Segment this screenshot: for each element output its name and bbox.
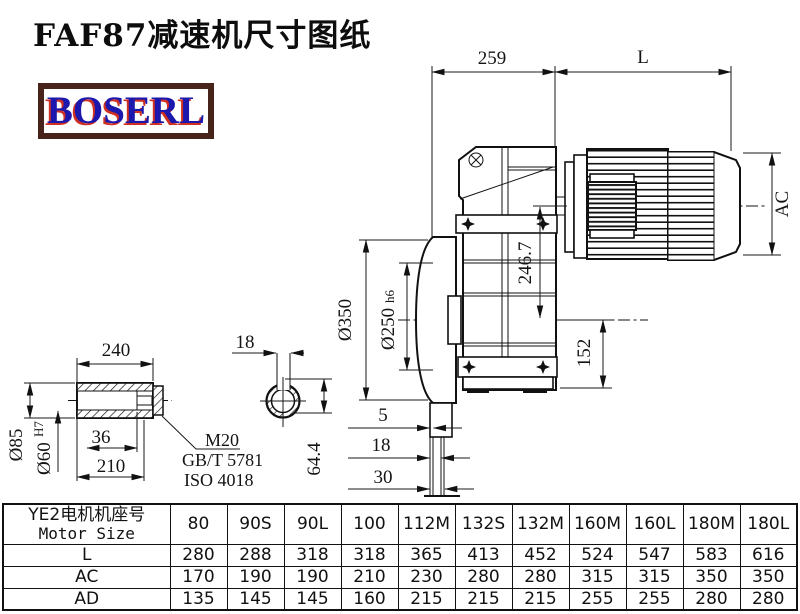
- terminal-box: [588, 182, 636, 230]
- cell: 413: [455, 544, 512, 566]
- row-label: L: [3, 544, 170, 566]
- cell: 280: [455, 566, 512, 588]
- cell: 315: [569, 566, 626, 588]
- dim-5-label: 5: [378, 405, 388, 426]
- cell: 135: [170, 588, 227, 610]
- dim-350-label: Ø350: [335, 299, 356, 341]
- dim-AC-label: AC: [772, 191, 793, 217]
- cell: 524: [569, 544, 626, 566]
- dim-250-tolerance: h6: [382, 290, 397, 304]
- dim-240-label: 240: [102, 340, 131, 361]
- table-row-L: L 280 288 318 318 365 413 452 524 547 58…: [3, 544, 797, 566]
- cell: 280: [170, 544, 227, 566]
- dim-L-label: L: [637, 47, 649, 68]
- thread-label: M20: [205, 430, 239, 450]
- cell: 280: [740, 588, 797, 610]
- cell: 616: [740, 544, 797, 566]
- output-flange: [416, 237, 461, 496]
- dim-18: 18: [348, 435, 470, 458]
- col-header: 80: [170, 504, 227, 544]
- cell: 190: [284, 566, 341, 588]
- dim-60-tolerance: H7: [31, 421, 46, 437]
- cell: 318: [284, 544, 341, 566]
- table-header-row: YE2电机机座号 Motor Size 80 90S 90L 100 112M …: [3, 504, 797, 544]
- thread-callout: M20 GB/T 5781 ISO 4018: [162, 416, 263, 490]
- terminal-box-top: [590, 174, 634, 182]
- dim-60H7: Ø60 H7: [31, 411, 58, 475]
- col-header: 90S: [227, 504, 284, 544]
- gearbox-housing: [456, 147, 557, 393]
- cell: 215: [455, 588, 512, 610]
- col-header: 160L: [626, 504, 683, 544]
- dim-152: 152: [558, 320, 612, 388]
- cell: 365: [398, 544, 455, 566]
- dim-keyway-18: 18: [232, 332, 304, 353]
- col-header: 112M: [398, 504, 455, 544]
- dim-60-label: Ø60: [34, 442, 55, 475]
- cell: 280: [683, 588, 740, 610]
- motor-size-header-en: Motor Size: [4, 525, 170, 543]
- cell: 288: [227, 544, 284, 566]
- dimension-drawing: 259 L AC 246.7: [0, 0, 800, 503]
- motor-size-table: YE2电机机座号 Motor Size 80 90S 90L 100 112M …: [2, 503, 798, 611]
- cell: 215: [398, 588, 455, 610]
- cell: 583: [683, 544, 740, 566]
- foot-pad: [467, 389, 489, 393]
- col-header: 90L: [284, 504, 341, 544]
- cell: 215: [512, 588, 569, 610]
- motor-size-header: YE2电机机座号 Motor Size: [3, 504, 170, 544]
- cowl-fins: [668, 152, 714, 260]
- shaft-wall-hatch: [78, 384, 152, 391]
- dim-250-label: Ø250: [378, 308, 399, 350]
- motor-size-header-cn: YE2电机机座号: [4, 506, 170, 525]
- cell: 255: [626, 588, 683, 610]
- cell: 318: [341, 544, 398, 566]
- cell: 145: [284, 588, 341, 610]
- shaft-wall-hatch: [78, 410, 152, 417]
- cell: 280: [512, 566, 569, 588]
- shaft-detail-view: 240 36 210 Ø85 Ø60 H7: [6, 340, 263, 490]
- dim-152-label: 152: [574, 339, 595, 368]
- cell: 160: [341, 588, 398, 610]
- cell: 145: [227, 588, 284, 610]
- cell: 255: [569, 588, 626, 610]
- cell: 315: [626, 566, 683, 588]
- cell: 190: [227, 566, 284, 588]
- dim-246-7-label: 246.7: [515, 242, 536, 285]
- dim-18-label: 18: [372, 435, 391, 456]
- dim-240: 240: [77, 340, 153, 381]
- col-header: 180L: [740, 504, 797, 544]
- cell: 547: [626, 544, 683, 566]
- terminal-box-bottom: [590, 230, 634, 238]
- foot-pad: [523, 389, 547, 393]
- dim-L: L: [555, 47, 731, 151]
- cell: 170: [170, 566, 227, 588]
- row-label: AC: [3, 566, 170, 588]
- col-header: 180M: [683, 504, 740, 544]
- dim-64-4-label: 64.4: [304, 442, 325, 476]
- cell: 210: [341, 566, 398, 588]
- dim-keyway-18-label: 18: [236, 332, 255, 353]
- cell: 350: [683, 566, 740, 588]
- col-header: 132M: [512, 504, 569, 544]
- dim-210-label: 210: [97, 456, 126, 477]
- main-view: 259 L AC 246.7: [335, 47, 793, 496]
- col-header: 100: [341, 504, 398, 544]
- cell: 230: [398, 566, 455, 588]
- std-iso-label: ISO 4018: [184, 470, 254, 490]
- dim-85-label: Ø85: [6, 429, 27, 462]
- std-gb-label: GB/T 5781: [182, 450, 263, 470]
- col-header: 160M: [569, 504, 626, 544]
- dim-36-label: 36: [92, 427, 111, 448]
- table-row-AD: AD 135 145 145 160 215 215 215 255 255 2…: [3, 588, 797, 610]
- row-label: AD: [3, 588, 170, 610]
- cell: 350: [740, 566, 797, 588]
- col-header: 132S: [455, 504, 512, 544]
- cell: 452: [512, 544, 569, 566]
- motor: [556, 149, 740, 260]
- end-washer: [153, 386, 163, 415]
- table-row-AC: AC 170 190 190 210 230 280 280 315 315 3…: [3, 566, 797, 588]
- dim-30-label: 30: [374, 467, 393, 488]
- page: { "title": "FAF87减速机尺寸图纸", "logo": { "te…: [0, 0, 800, 614]
- dim-AC: AC: [743, 153, 793, 255]
- dim-259-label: 259: [478, 48, 507, 69]
- dim-30: 30: [348, 467, 474, 489]
